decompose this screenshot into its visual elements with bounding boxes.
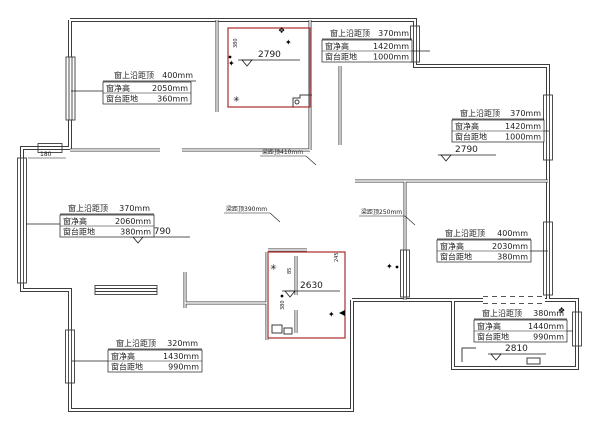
- red-zone-top-room: [228, 28, 310, 107]
- beam-note-3: 梁距顶250mm: [359, 208, 415, 225]
- row1-label: 窗上沿距顶: [116, 338, 156, 348]
- light-symbol-icon: ✳: [233, 95, 240, 104]
- row3-label: 窗台距地: [325, 52, 357, 62]
- floor-plan-svg: 2790 2790 2790 2630 2810 梁距顶410mm 梁距顶390…: [0, 0, 600, 429]
- window-label-bottom-left: 窗上沿距顶 320mm 窗净高 1430mm 窗台距地 990mm: [72, 338, 202, 372]
- light-symbol-icon: ❖: [278, 26, 285, 35]
- row1-label: 窗上沿距顶: [460, 108, 500, 118]
- row2-label: 窗净高: [325, 41, 349, 51]
- row1-value: 400mm: [162, 71, 193, 80]
- row3-value: 380mm: [497, 253, 528, 262]
- row3-label: 窗台距地: [477, 332, 509, 342]
- window-label-top-left: 窗上沿距顶 400mm 窗净高 2050mm 窗台距地 360mm: [71, 70, 196, 104]
- micro-dim: 380: [280, 300, 286, 310]
- level-value: 2790: [258, 50, 281, 60]
- row2-value: 2060mm: [115, 217, 151, 226]
- row1-value: 380mm: [533, 309, 564, 318]
- row2-value: 1440mm: [528, 322, 564, 331]
- row1-value: 370mm: [119, 204, 150, 213]
- level-mark-center-room: 2630: [282, 281, 340, 297]
- row2-label: 窗净高: [477, 321, 501, 331]
- window-icon: [66, 330, 75, 383]
- row1-value: 370mm: [378, 29, 409, 38]
- window-icon: [544, 222, 553, 295]
- row2-label: 窗净高: [455, 121, 479, 131]
- row2-value: 2050mm: [152, 84, 188, 93]
- outlet-dot-icon: [229, 56, 232, 59]
- beam-text: 梁距顶410mm: [262, 148, 303, 156]
- row2-value: 1420mm: [505, 122, 541, 131]
- micro-dim: 85: [287, 268, 293, 274]
- level-triangle-icon: [242, 60, 252, 66]
- window-label-right-upper: 窗上沿距顶 370mm 窗净高 1420mm 窗台距地 1000mm: [452, 108, 549, 142]
- row1-label: 窗上沿距顶: [482, 308, 522, 318]
- row3-value: 1000mm: [373, 53, 409, 62]
- light-symbol-icon: ✦: [228, 59, 235, 68]
- row3-value: 360mm: [157, 95, 188, 104]
- window-label-mid-left: 窗上沿距顶 370mm 窗净高 2060mm 窗台距地 380mm: [26, 203, 154, 237]
- floor-plan-page: 2790 2790 2790 2630 2810 梁距顶410mm 梁距顶390…: [0, 0, 600, 429]
- row2-label: 窗净高: [111, 351, 135, 361]
- row2-label: 窗净高: [440, 241, 464, 251]
- beam-text: 梁距顶250mm: [361, 208, 402, 216]
- row2-label: 窗净高: [63, 216, 87, 226]
- row2-value: 1420mm: [373, 42, 409, 51]
- beam-note-2: 梁距顶390mm: [224, 205, 280, 222]
- outlet-dot-icon: [396, 266, 399, 269]
- window-icon: [573, 312, 582, 346]
- row3-value: 990mm: [168, 363, 199, 372]
- window-label-right-mid: 窗上沿距顶 400mm 窗净高 2030mm 窗台距地 380mm: [437, 228, 548, 262]
- level-value: 2810: [505, 344, 528, 354]
- level-value: 2790: [455, 145, 478, 155]
- row3-value: 380mm: [120, 228, 151, 237]
- window-icon: [544, 95, 553, 160]
- level-triangle-icon: [441, 155, 451, 161]
- row1-value: 320mm: [167, 339, 198, 348]
- row1-label: 窗上沿距顶: [330, 28, 370, 38]
- window-icon: [401, 250, 410, 297]
- outlet-dot-icon: [281, 295, 284, 298]
- row2-label: 窗净高: [106, 83, 130, 93]
- arrow-icon: [339, 310, 345, 316]
- level-triangle-icon: [491, 354, 501, 360]
- window-icon: [18, 158, 27, 283]
- level-triangle-icon: [133, 237, 143, 243]
- beam-text: 梁距顶390mm: [226, 205, 267, 213]
- dim-text: 180: [40, 151, 52, 158]
- window-label-bottom-right: 窗上沿距顶 380mm 窗净高 1440mm 窗台距地 990mm: [474, 308, 573, 342]
- level-value: 2630: [300, 281, 323, 291]
- dashed-opening: [483, 297, 545, 304]
- light-symbol-icon: ✦: [386, 262, 393, 271]
- micro-dim: 380: [233, 38, 239, 48]
- row3-value: 990mm: [533, 333, 564, 342]
- row3-value: 1000mm: [505, 133, 541, 142]
- row3-label: 窗台距地: [455, 132, 487, 142]
- light-symbol-icon: ✳: [270, 263, 277, 272]
- row1-value: 400mm: [497, 229, 528, 238]
- row1-value: 370mm: [510, 109, 541, 118]
- row3-label: 窗台距地: [440, 252, 472, 262]
- level-triangle-icon: [285, 291, 295, 297]
- fixture-symbols: ✦ ❖ ✦ ✳ ✳ ✦ ✦ ❖ ✦: [228, 26, 565, 331]
- window-icon: [66, 57, 75, 120]
- light-symbol-icon: ✦: [328, 310, 335, 319]
- row2-value: 1430mm: [163, 352, 199, 361]
- level-mark-right-room: 2790: [438, 145, 496, 161]
- row3-label: 窗台距地: [106, 94, 138, 104]
- row1-label: 窗上沿距顶: [68, 203, 108, 213]
- row1-label: 窗上沿距顶: [114, 70, 154, 80]
- row1-label: 窗上沿距顶: [445, 228, 485, 238]
- row3-label: 窗台距地: [63, 227, 95, 237]
- micro-dim: 245: [334, 252, 340, 262]
- level-mark-top-room: 2790: [238, 50, 300, 66]
- row2-value: 2030mm: [492, 242, 528, 251]
- window-icon: [95, 286, 157, 295]
- light-symbol-icon: ✦: [285, 38, 292, 47]
- row3-label: 窗台距地: [111, 362, 143, 372]
